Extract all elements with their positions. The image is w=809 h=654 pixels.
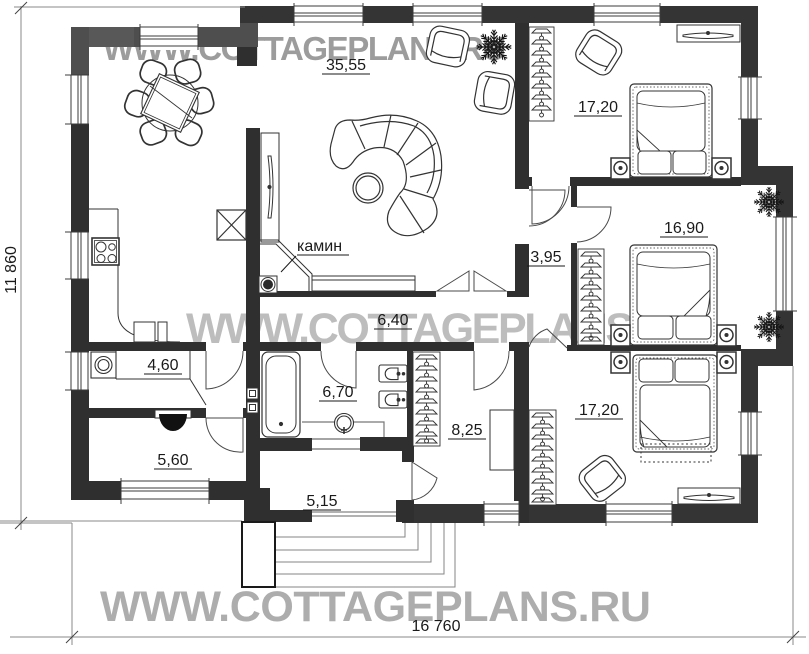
svg-text:16 760: 16 760: [412, 618, 461, 635]
svg-text:камин: камин: [297, 238, 342, 255]
svg-text:11 860: 11 860: [3, 246, 20, 294]
svg-text:6,70: 6,70: [322, 384, 353, 401]
svg-text:3,95: 3,95: [530, 249, 561, 266]
svg-text:17,20: 17,20: [579, 402, 619, 419]
svg-text:35,55: 35,55: [326, 57, 366, 74]
svg-text:4,60: 4,60: [147, 357, 178, 374]
svg-text:16,90: 16,90: [664, 220, 704, 237]
svg-text:8,25: 8,25: [451, 422, 482, 439]
svg-text:6,40: 6,40: [377, 312, 408, 329]
svg-text:WWW.COTTAGEPLANS.RU: WWW.COTTAGEPLANS.RU: [100, 583, 651, 631]
svg-text:5,60: 5,60: [157, 452, 188, 469]
svg-text:17,20: 17,20: [578, 99, 618, 116]
svg-text:5,15: 5,15: [306, 493, 337, 510]
